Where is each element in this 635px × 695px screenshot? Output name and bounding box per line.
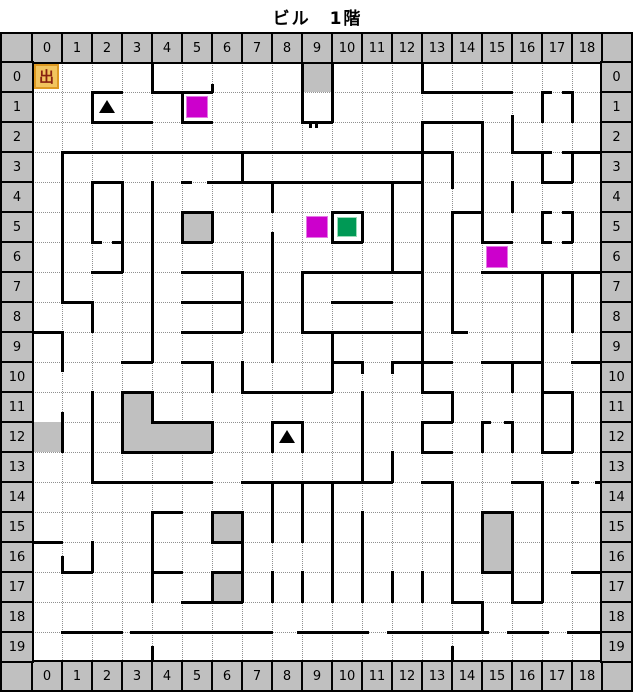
shaded-cell: [32, 422, 62, 452]
wall-horizontal: [541, 391, 573, 394]
wall-horizontal: [562, 151, 603, 154]
wall-vertical: [331, 331, 334, 393]
wall-vertical: [181, 91, 184, 123]
shaded-cell: [302, 62, 332, 92]
wall-horizontal: [61, 151, 453, 154]
wall-vertical: [451, 211, 454, 333]
wall-vertical: [241, 511, 244, 603]
wall-vertical: [361, 361, 364, 374]
left-header-cell: 5: [0, 211, 34, 243]
wall-vertical: [511, 181, 514, 213]
marker-triangle: [279, 430, 295, 443]
wall-horizontal: [61, 301, 93, 304]
wall-horizontal: [61, 631, 123, 634]
shaded-cell: [482, 542, 512, 572]
wall-horizontal: [181, 331, 243, 334]
right-header-cell: 12: [600, 421, 633, 453]
wall-horizontal: [541, 451, 573, 454]
wall-vertical: [91, 541, 94, 573]
wall-vertical: [271, 181, 274, 213]
wall-horizontal: [421, 121, 483, 124]
top-header-cell: 1: [61, 32, 93, 64]
wall-horizontal: [421, 421, 453, 424]
shaded-cell: [212, 512, 242, 542]
wall-vertical: [541, 271, 544, 453]
wall-vertical: [571, 271, 574, 333]
grid-line-horizontal: [32, 302, 602, 303]
header-corner: [600, 660, 633, 692]
wall-horizontal: [211, 511, 243, 514]
wall-vertical: [511, 361, 514, 393]
wall-horizontal: [331, 211, 363, 214]
left-header-cell: 16: [0, 541, 34, 573]
left-header-cell: 11: [0, 391, 34, 423]
top-header-cell: 13: [421, 32, 453, 64]
left-header-cell: 0: [0, 61, 34, 93]
wall-vertical: [271, 421, 274, 453]
wall-vertical: [481, 601, 484, 633]
wall-horizontal: [181, 241, 213, 244]
wall-vertical: [241, 151, 244, 183]
wall-horizontal: [421, 391, 453, 394]
wall-vertical: [121, 181, 124, 273]
left-header-cell: 13: [0, 451, 34, 483]
top-header-cell: 6: [211, 32, 243, 64]
wall-horizontal: [481, 511, 513, 514]
wall-horizontal: [301, 331, 423, 334]
wall-vertical: [211, 361, 214, 393]
wall-horizontal: [331, 301, 393, 304]
left-header-cell: 14: [0, 481, 34, 513]
item-magenta-square: [307, 217, 327, 237]
right-header-cell: 1: [600, 91, 633, 123]
wall-horizontal: [297, 631, 370, 634]
bottom-header-cell: 18: [571, 660, 603, 692]
wall-vertical: [151, 181, 154, 363]
wall-horizontal: [271, 421, 303, 424]
right-header-cell: 0: [600, 61, 633, 93]
wall-vertical: [421, 121, 424, 393]
bottom-header-cell: 14: [451, 660, 483, 692]
wall-horizontal: [211, 541, 243, 544]
wall-vertical: [151, 391, 154, 423]
shaded-cell: [122, 422, 152, 452]
wall-horizontal: [451, 601, 483, 604]
wall-horizontal: [181, 271, 243, 274]
grid-line-horizontal: [32, 512, 602, 513]
wall-vertical: [181, 211, 184, 243]
top-header-cell: 0: [31, 32, 63, 64]
wall-horizontal: [91, 181, 123, 184]
wall-horizontal: [511, 601, 543, 604]
right-header-cell: 7: [600, 271, 633, 303]
wall-horizontal: [571, 361, 603, 364]
wall-vertical: [541, 151, 544, 183]
wall-horizontal: [507, 631, 550, 634]
wall-vertical: [571, 91, 574, 123]
top-header-cell: 11: [361, 32, 393, 64]
wall-vertical: [241, 271, 244, 333]
wall-vertical: [511, 115, 514, 153]
wall-vertical: [61, 556, 64, 573]
grid-line-horizontal: [32, 212, 602, 213]
wall-horizontal: [211, 571, 243, 574]
bottom-header-cell: 13: [421, 660, 453, 692]
top-header-cell: 18: [571, 32, 603, 64]
top-header-cell: 2: [91, 32, 123, 64]
wall-vertical: [331, 61, 334, 123]
wall-horizontal: [241, 481, 393, 484]
wall-horizontal: [387, 631, 490, 634]
wall-horizontal: [567, 631, 604, 634]
left-header-cell: 12: [0, 421, 34, 453]
wall-vertical: [451, 151, 454, 189]
wall-vertical: [391, 361, 394, 374]
wall-vertical: [271, 232, 274, 363]
wall-horizontal: [511, 481, 543, 484]
wall-horizontal: [121, 361, 153, 364]
bottom-header-cell: 4: [151, 660, 183, 692]
wall-vertical: [301, 421, 304, 453]
right-header-cell: 17: [600, 571, 633, 603]
wall-horizontal: [181, 211, 213, 214]
top-header-cell: 9: [301, 32, 333, 64]
top-header-cell: 17: [541, 32, 573, 64]
left-header-cell: 18: [0, 601, 34, 633]
right-header-cell: 10: [600, 361, 633, 393]
wall-vertical: [361, 211, 364, 243]
left-header-cell: 10: [0, 361, 34, 393]
wall-vertical: [541, 481, 544, 603]
wall-vertical: [511, 511, 514, 603]
top-header-cell: 3: [121, 32, 153, 64]
wall-horizontal: [181, 181, 192, 184]
bottom-header-cell: 8: [271, 660, 303, 692]
right-header-cell: 11: [600, 391, 633, 423]
bottom-header-cell: 7: [241, 660, 273, 692]
top-header-cell: 7: [241, 32, 273, 64]
wall-vertical: [481, 511, 484, 573]
wall-horizontal: [301, 271, 423, 274]
wall-vertical: [61, 331, 64, 372]
grid-line-horizontal: [32, 572, 602, 573]
wall-vertical: [391, 571, 394, 603]
wall-vertical: [571, 391, 574, 453]
wall-vertical: [91, 391, 94, 483]
right-header-cell: 9: [600, 331, 633, 363]
top-header-cell: 14: [451, 32, 483, 64]
wall-horizontal: [511, 151, 552, 154]
item-green-square: [338, 218, 356, 236]
wall-horizontal: [151, 511, 183, 514]
right-header-cell: 14: [600, 481, 633, 513]
bottom-header-cell: 11: [361, 660, 393, 692]
wall-horizontal: [91, 121, 153, 124]
wall-vertical: [541, 91, 544, 123]
wall-vertical: [271, 481, 274, 543]
wall-vertical: [211, 211, 214, 243]
left-header-cell: 17: [0, 571, 34, 603]
wall-horizontal: [241, 391, 333, 394]
wall-vertical: [391, 451, 394, 483]
right-header-cell: 5: [600, 211, 633, 243]
wall-vertical: [61, 412, 64, 453]
top-header-cell: 5: [181, 32, 213, 64]
right-header-cell: 15: [600, 511, 633, 543]
wall-vertical: [151, 511, 154, 603]
wall-horizontal: [181, 361, 213, 364]
header-corner: [0, 32, 34, 64]
wall-vertical: [91, 301, 94, 333]
wall-horizontal: [151, 571, 183, 574]
top-header-cell: 16: [511, 32, 543, 64]
wall-vertical: [361, 391, 364, 483]
wall-vertical: [151, 61, 154, 93]
wall-horizontal: [121, 451, 213, 454]
top-header-cell: 12: [391, 32, 423, 64]
door-tick: [309, 122, 312, 128]
wall-vertical: [241, 361, 244, 393]
wall-vertical: [121, 391, 124, 453]
wall-horizontal: [421, 91, 513, 94]
left-header-cell: 19: [0, 631, 34, 663]
wall-vertical: [421, 421, 424, 453]
shaded-cell: [182, 422, 212, 452]
wall-vertical: [61, 151, 64, 303]
left-header-cell: 1: [0, 91, 34, 123]
wall-vertical: [301, 481, 304, 543]
wall-vertical: [391, 181, 394, 273]
shaded-cell: [152, 422, 182, 452]
wall-vertical: [271, 571, 274, 603]
map-title: ビル 1階: [0, 4, 635, 29]
wall-horizontal: [421, 481, 453, 484]
header-corner: [600, 32, 633, 64]
wall-horizontal: [331, 241, 363, 244]
wall-vertical: [451, 391, 454, 423]
wall-horizontal: [181, 121, 213, 124]
marker-triangle: [99, 100, 115, 113]
bottom-header-cell: 12: [391, 660, 423, 692]
wall-vertical: [211, 571, 214, 603]
left-header-cell: 7: [0, 271, 34, 303]
bottom-header-cell: 9: [301, 660, 333, 692]
right-header-cell: 3: [600, 151, 633, 183]
wall-vertical: [511, 421, 514, 453]
wall-horizontal: [31, 331, 63, 334]
right-header-cell: 6: [600, 241, 633, 273]
wall-vertical: [451, 481, 454, 603]
grid-line-horizontal: [32, 542, 602, 543]
wall-horizontal: [481, 241, 513, 244]
wall-vertical: [301, 61, 304, 123]
wall-vertical: [331, 481, 334, 603]
left-header-cell: 8: [0, 301, 34, 333]
wall-vertical: [571, 211, 574, 243]
right-header-cell: 13: [600, 451, 633, 483]
bottom-header-cell: 6: [211, 660, 243, 692]
left-header-cell: 9: [0, 331, 34, 363]
shaded-cell: [212, 572, 242, 602]
shaded-cell: [122, 392, 152, 422]
grid-line-horizontal: [32, 422, 602, 423]
shaded-cell: [182, 212, 212, 242]
wall-vertical: [481, 421, 484, 453]
wall-horizontal: [31, 541, 63, 544]
bottom-header-cell: 15: [481, 660, 513, 692]
wall-vertical: [91, 91, 94, 123]
wall-vertical: [211, 511, 214, 543]
wall-horizontal: [421, 451, 453, 454]
wall-vertical: [301, 571, 304, 603]
wall-vertical: [421, 61, 424, 93]
item-magenta-square: [487, 247, 507, 267]
wall-vertical: [91, 181, 94, 243]
bottom-header-cell: 1: [61, 660, 93, 692]
bottom-header-cell: 3: [121, 660, 153, 692]
bottom-header-cell: 0: [31, 660, 63, 692]
wall-horizontal: [91, 481, 213, 484]
wall-vertical: [481, 121, 484, 243]
top-header-cell: 4: [151, 32, 183, 64]
bottom-header-cell: 5: [181, 660, 213, 692]
wall-vertical: [211, 421, 214, 453]
wall-horizontal: [121, 391, 153, 394]
wall-horizontal: [451, 211, 483, 214]
bottom-header-cell: 2: [91, 660, 123, 692]
left-header-cell: 3: [0, 151, 34, 183]
shaded-cell: [482, 512, 512, 542]
wall-horizontal: [541, 181, 573, 184]
right-header-cell: 8: [600, 301, 633, 333]
wall-horizontal: [151, 421, 213, 424]
wall-horizontal: [481, 571, 513, 574]
top-header-cell: 8: [271, 32, 303, 64]
wall-horizontal: [571, 481, 579, 484]
bottom-header-cell: 10: [331, 660, 363, 692]
wall-horizontal: [91, 271, 123, 274]
item-magenta-square: [187, 97, 207, 117]
floor-map: ビル 1階 出012345678910111213141516171801234…: [0, 0, 635, 695]
wall-vertical: [211, 84, 214, 94]
wall-vertical: [331, 211, 334, 243]
right-header-cell: 16: [600, 541, 633, 573]
wall-horizontal: [91, 91, 123, 94]
wall-horizontal: [61, 571, 93, 574]
wall-vertical: [361, 511, 364, 603]
grid-line-horizontal: [32, 452, 602, 453]
left-header-cell: 6: [0, 241, 34, 273]
left-header-cell: 4: [0, 181, 34, 213]
right-header-cell: 19: [600, 631, 633, 663]
right-header-cell: 2: [600, 121, 633, 153]
right-header-cell: 4: [600, 181, 633, 213]
left-header-cell: 15: [0, 511, 34, 543]
bottom-header-cell: 17: [541, 660, 573, 692]
door-tick: [315, 122, 318, 128]
wall-horizontal: [571, 571, 603, 574]
top-header-cell: 10: [331, 32, 363, 64]
right-header-cell: 18: [600, 601, 633, 633]
wall-vertical: [421, 571, 424, 603]
header-corner: [0, 660, 34, 692]
exit-cell: 出: [34, 64, 59, 89]
wall-vertical: [541, 211, 544, 243]
bottom-header-cell: 16: [511, 660, 543, 692]
wall-vertical: [301, 271, 304, 333]
wall-horizontal: [181, 301, 243, 304]
top-header-cell: 15: [481, 32, 513, 64]
wall-horizontal: [130, 631, 273, 634]
wall-horizontal: [331, 361, 363, 364]
left-header-cell: 2: [0, 121, 34, 153]
wall-vertical: [571, 151, 574, 183]
